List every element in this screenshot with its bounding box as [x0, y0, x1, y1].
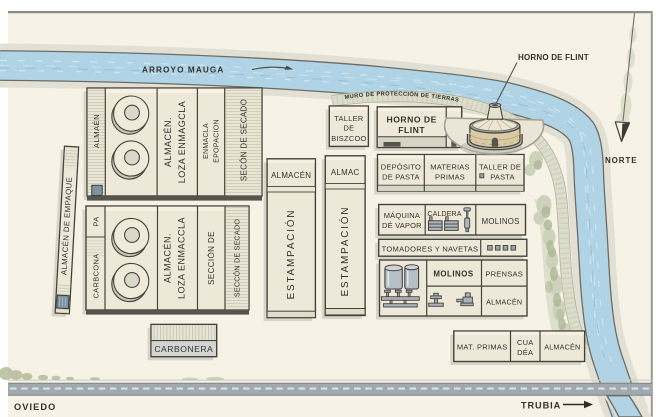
svg-text:SECÓN DE SECADO: SECÓN DE SECADO	[240, 99, 249, 181]
svg-text:ESTAMPACIÓN: ESTAMPACIÓN	[286, 209, 297, 300]
svg-text:PASTA: PASTA	[490, 173, 514, 182]
svg-text:MATERIAS: MATERIAS	[430, 163, 469, 172]
svg-text:DE: DE	[343, 124, 354, 133]
svg-text:ALMACÉN.: ALMACÉN.	[162, 233, 172, 283]
svg-text:LOZA ENMAGCLA: LOZA ENMAGCLA	[177, 101, 187, 184]
svg-text:SECCÓN DE SECADO: SECCÓN DE SECADO	[232, 219, 241, 297]
svg-text:ALMAÉN: ALMAÉN	[92, 114, 101, 148]
svg-text:ARROYO MAUGA: ARROYO MAUGA	[142, 66, 224, 75]
svg-text:ALMACÉN: ALMACÉN	[271, 171, 311, 180]
svg-text:SECCIÓN DE: SECCIÓN DE	[207, 231, 216, 285]
svg-text:DE PASTA: DE PASTA	[382, 173, 420, 182]
svg-text:CARBCONA: CARBCONA	[91, 253, 100, 298]
svg-text:ALMAC: ALMAC	[331, 168, 360, 177]
svg-text:MAT. PRIMAS: MAT. PRIMAS	[457, 343, 508, 352]
svg-text:PA: PA	[91, 216, 100, 226]
svg-text:TALLER: TALLER	[334, 114, 363, 123]
svg-text:LOZA ENMACCLA: LOZA ENMACCLA	[176, 217, 186, 299]
svg-text:DÉ VAPOR: DÉ VAPOR	[382, 221, 422, 230]
svg-text:DÉA: DÉA	[517, 348, 533, 357]
svg-text:MOLINOS: MOLINOS	[482, 217, 520, 226]
svg-text:ALMACÉN.: ALMACÉN.	[163, 117, 173, 167]
svg-text:CUA: CUA	[517, 338, 533, 347]
svg-text:MÁQUINA: MÁQUINA	[384, 211, 420, 220]
svg-text:TRUBIA: TRUBIA	[521, 401, 561, 411]
svg-text:NORTE: NORTE	[605, 156, 638, 165]
svg-text:ALMACÉN: ALMACÉN	[486, 298, 522, 307]
svg-text:FLINT: FLINT	[398, 125, 425, 135]
svg-text:MOLINOS: MOLINOS	[433, 270, 473, 279]
svg-text:TALLER DE: TALLER DE	[479, 163, 521, 172]
svg-text:HORNO DE FLINT: HORNO DE FLINT	[518, 53, 589, 62]
svg-text:EPOPACION: EPOPACION	[213, 119, 220, 163]
svg-text:ESTAMPACIÓN: ESTAMPACIÓN	[340, 206, 351, 297]
svg-text:TOMADORES Y NAVETAS: TOMADORES Y NAVETAS	[382, 244, 479, 253]
svg-text:CALDERA: CALDERA	[427, 210, 461, 218]
svg-text:ENMACLA: ENMACLA	[203, 123, 210, 159]
svg-text:CARBONERA: CARBONERA	[154, 344, 213, 354]
svg-text:DEPÓSITO: DEPÓSITO	[381, 163, 421, 172]
svg-text:BISZCOO: BISZCOO	[331, 134, 366, 143]
svg-text:PRIMAS: PRIMAS	[435, 173, 465, 182]
svg-text:OVIEDO: OVIEDO	[14, 402, 56, 412]
svg-text:PRENSAS: PRENSAS	[485, 270, 523, 279]
svg-text:HORNO DE: HORNO DE	[387, 115, 437, 125]
svg-text:ALMACÉN: ALMACÉN	[544, 343, 580, 352]
